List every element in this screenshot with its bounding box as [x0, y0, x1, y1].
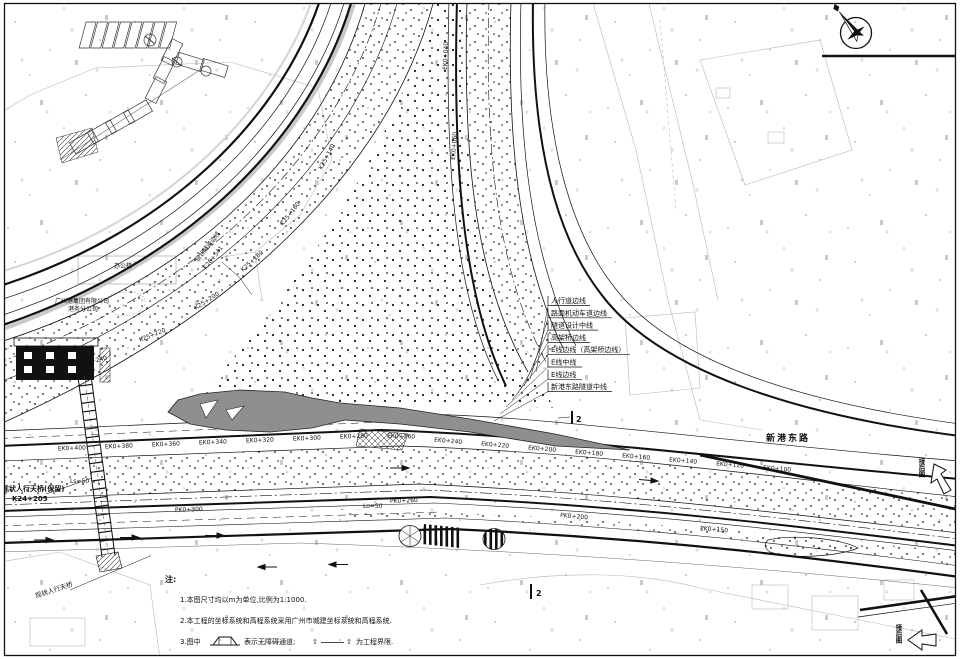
legend-label: E线中线: [551, 358, 576, 367]
median-end-cap-hatched: [483, 529, 505, 550]
chainage-label: EK0+040: [442, 42, 450, 70]
ls-label: Ls=50: [70, 478, 89, 485]
chainage-label: PK0+260: [390, 497, 418, 505]
note-3-suffix: 为工程界限.: [356, 637, 393, 646]
legend-label: E线边线（高架桥边线）: [551, 345, 625, 354]
chainage-label: EK0+300: [293, 435, 321, 443]
chainage-label: EK0+400: [58, 444, 86, 452]
zebra-crossing: [422, 524, 462, 548]
note-2: 2.本工程的坐标系统和高程系统采用广州市城建坐标系统和高程系统.: [180, 616, 392, 625]
note-1: 1.本图尺寸均以m为单位,比例为1:1000.: [180, 595, 307, 604]
chainage-label: EK0+380: [105, 442, 133, 450]
chainage-label: EK0+280: [340, 433, 368, 441]
legend-label: 路面机动车道边线: [551, 308, 607, 317]
company-label-line2: 港务分公司: [68, 305, 98, 313]
gate-symbol-right: ⇧: [346, 638, 352, 646]
road-name-label: 新港东路: [766, 432, 810, 444]
chainage-label: EK0+340: [199, 438, 227, 446]
company-label-line1: 广州港集团有限公司: [55, 297, 109, 305]
match-label-right: 接后图: [917, 457, 925, 479]
notes-title: 注:: [165, 574, 176, 584]
section-number: 2: [536, 589, 542, 598]
existing-bridge-label-line2: K24+205: [12, 495, 48, 503]
office-building-label: 办公楼: [114, 262, 132, 270]
match-label-bottom: 接后图: [894, 623, 902, 645]
chainage-label: EK0+320: [246, 436, 274, 444]
chainage-label: EK0+260: [387, 433, 415, 441]
chainage-label: EK0+360: [152, 440, 180, 448]
legend-label: 人行道边线: [551, 296, 586, 305]
legend-label: 新港东路隧道中线: [551, 382, 607, 391]
legend-label: 高架桥边线: [551, 333, 586, 342]
lo-label: Lo=50: [363, 503, 383, 510]
note-3-mid: 表示无障碍通道;: [244, 637, 295, 646]
note-3-prefix: 3.图中: [180, 637, 201, 646]
existing-bridge-label-line1: 现状人行天桥(保留): [2, 484, 64, 493]
legend-label: E线边线: [551, 370, 576, 379]
legend-label: 隧道设计中线: [551, 321, 593, 330]
section-number: 2: [576, 415, 582, 424]
engineering-plan-drawing: 人行道边线 路面机动车道边线 隧道设计中线 高架桥边线 E线边线（高架桥边线）: [0, 0, 960, 659]
chainage-label: PK0+300: [175, 506, 203, 514]
gate-symbol-left: ⇧: [312, 638, 318, 646]
